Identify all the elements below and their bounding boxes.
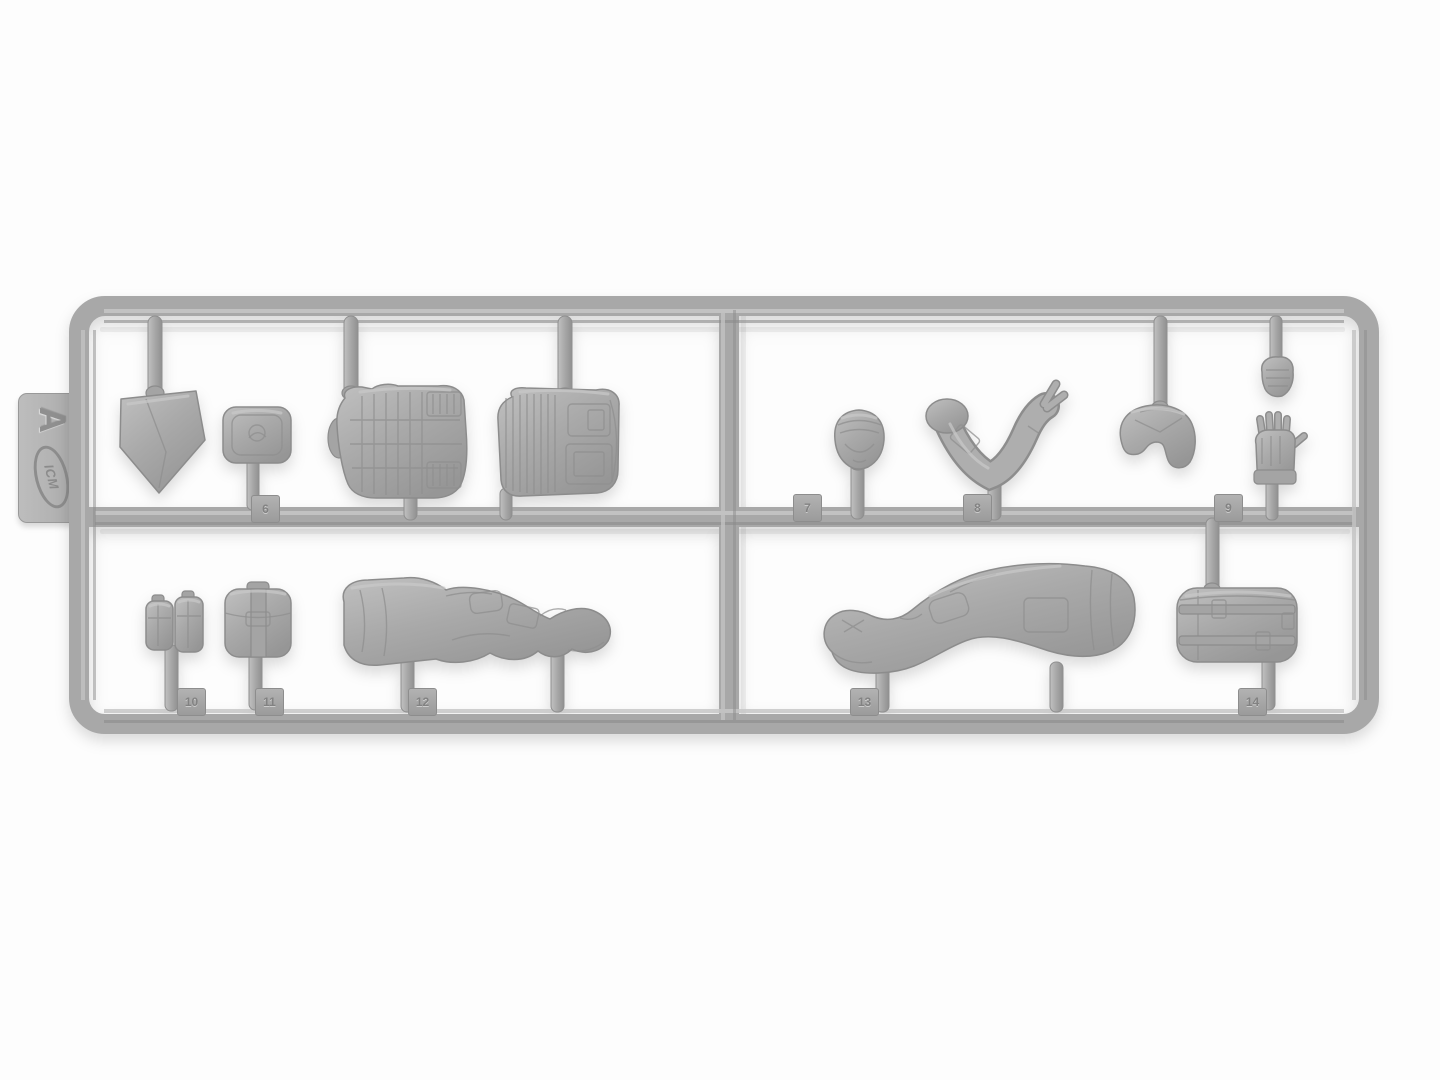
part-vest-back — [498, 316, 619, 520]
sprue-photo: A ICM — [0, 0, 1440, 1080]
part-shovel-blade — [120, 316, 205, 493]
part-number-tag-14: 14 — [1238, 688, 1267, 716]
part-number-tag-9: 9 — [1214, 494, 1243, 522]
part-number-tag-7: 7 — [793, 494, 822, 522]
part-gloved-hand — [1254, 415, 1304, 520]
part-bent-arm — [1120, 316, 1195, 468]
part-number-tag-8: 8 — [963, 494, 992, 522]
sprue-frame-layer — [0, 0, 1440, 1080]
part-number-tag-10: 10 — [177, 688, 206, 716]
part-number-tag-11: 11 — [255, 688, 284, 716]
part-seated-legs-left — [343, 578, 610, 712]
part-number-tag-6: 6 — [251, 495, 280, 523]
part-backpack — [1177, 518, 1297, 710]
part-head — [835, 410, 884, 519]
part-pointing-arm — [926, 384, 1064, 520]
part-vest-front — [328, 316, 467, 520]
part-number-tag-12: 12 — [408, 688, 437, 716]
part-number-tag-13: 13 — [850, 688, 879, 716]
sprue-drawing — [0, 0, 1440, 1080]
